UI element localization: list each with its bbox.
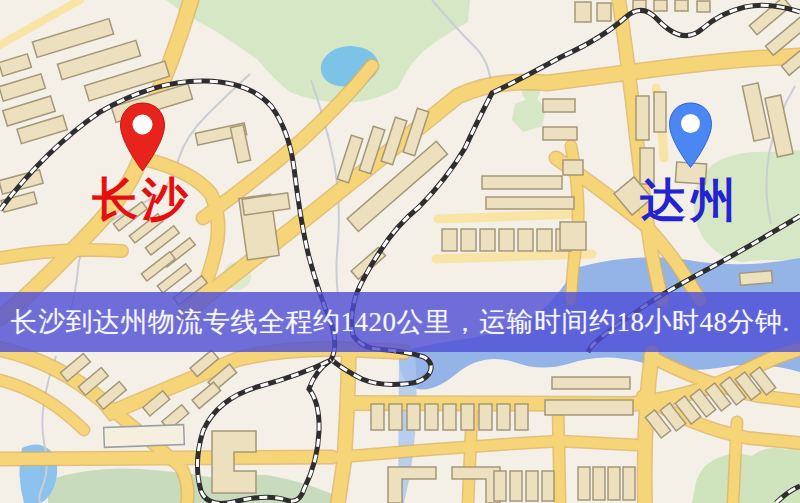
destination-city-label: 达州 bbox=[640, 178, 740, 224]
route-info-text: 长沙到达州物流专线全程约1420公里，运输时间约18小时48分钟. bbox=[10, 304, 789, 340]
map-screenshot: 长沙到达州物流专线全程约1420公里，运输时间约18小时48分钟. 长沙 达州 bbox=[0, 0, 800, 503]
route-info-banner: 长沙到达州物流专线全程约1420公里，运输时间约18小时48分钟. bbox=[0, 292, 800, 352]
red-pin-icon bbox=[119, 102, 166, 173]
blue-pin-icon bbox=[668, 102, 713, 169]
origin-city-label: 长沙 bbox=[92, 177, 192, 223]
street-map bbox=[0, 0, 800, 503]
